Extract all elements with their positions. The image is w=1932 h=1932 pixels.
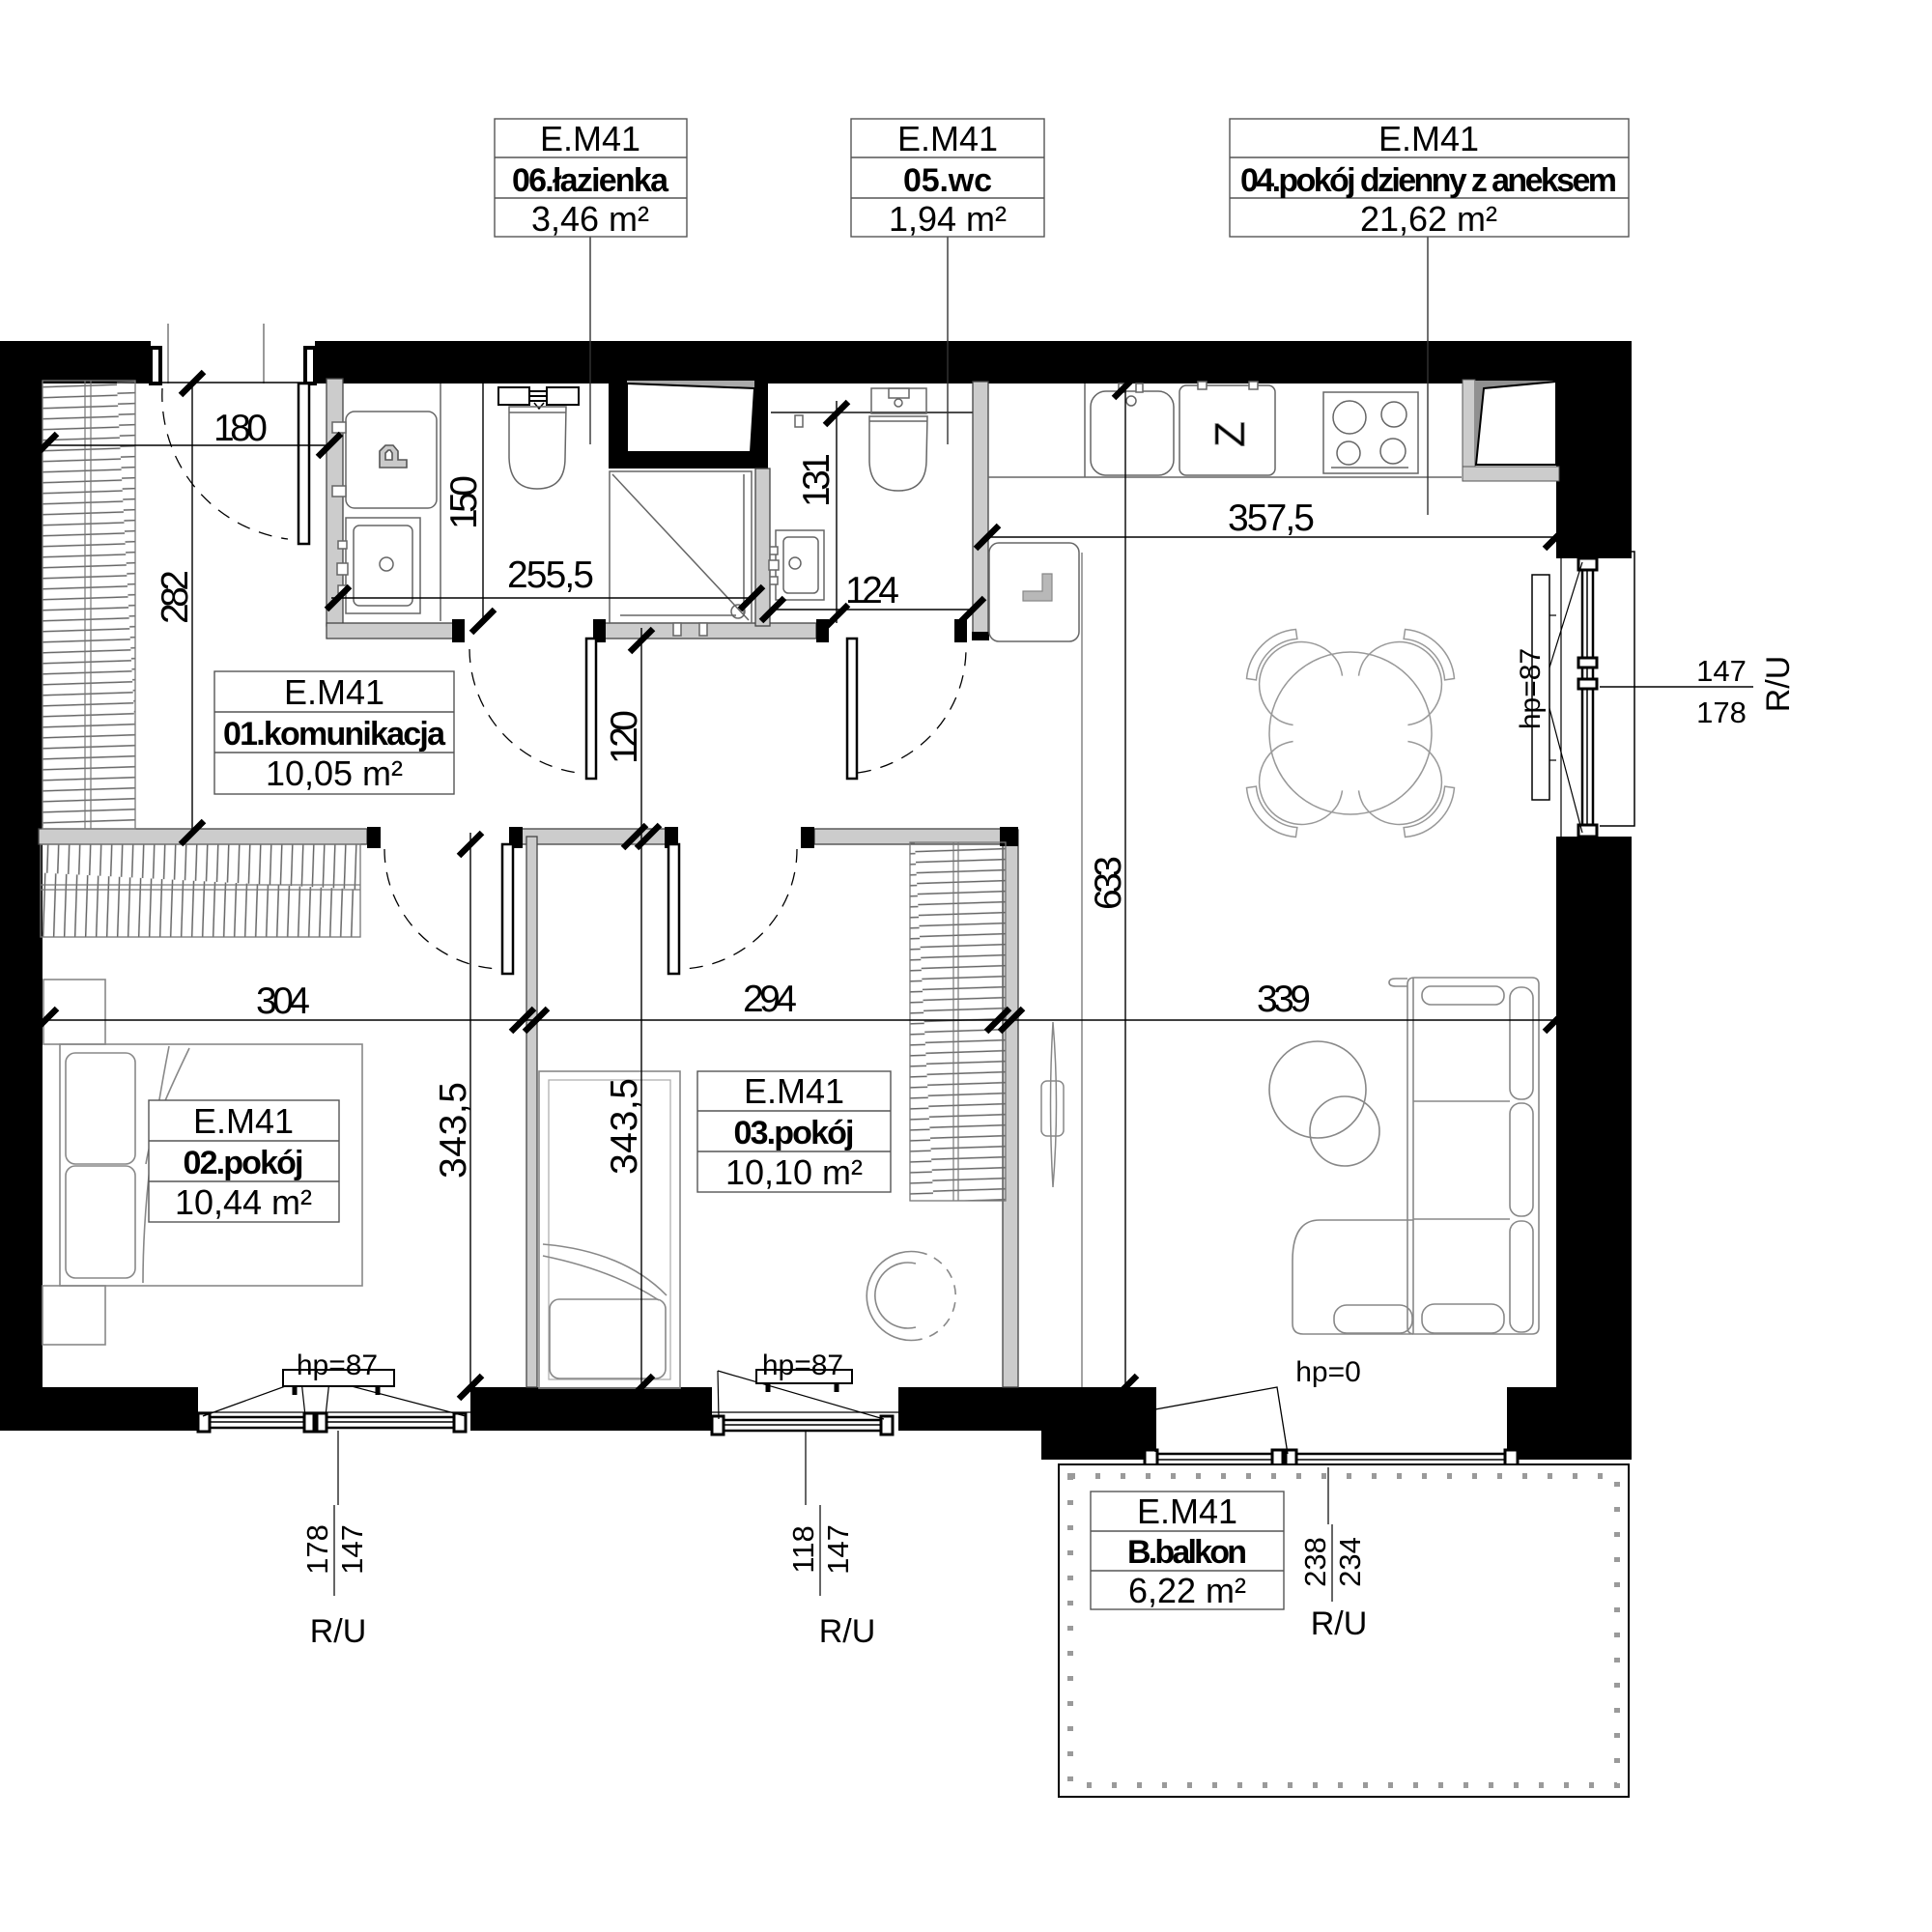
- svg-text:B.balkon: B.balkon: [1127, 1534, 1247, 1571]
- svg-text:10,44 m²: 10,44 m²: [175, 1182, 312, 1222]
- svg-text:02.pokój: 02.pokój: [184, 1145, 304, 1181]
- svg-text:131: 131: [796, 453, 838, 507]
- svg-text:1,94 m²: 1,94 m²: [889, 199, 1007, 239]
- svg-text:343,5: 343,5: [433, 1082, 474, 1179]
- svg-text:3,46 m²: 3,46 m²: [531, 199, 649, 239]
- svg-text:282: 282: [155, 570, 196, 624]
- svg-text:03.pokój: 03.pokój: [734, 1115, 855, 1151]
- svg-text:238: 238: [1298, 1537, 1332, 1587]
- svg-text:R/U: R/U: [1760, 656, 1797, 713]
- svg-text:343,5: 343,5: [604, 1078, 645, 1175]
- svg-text:178: 178: [300, 1524, 334, 1575]
- svg-text:10,05 m²: 10,05 m²: [266, 753, 403, 793]
- svg-text:633: 633: [1088, 856, 1129, 910]
- svg-text:147: 147: [1696, 654, 1747, 688]
- svg-text:150: 150: [443, 475, 485, 529]
- svg-text:E.M41: E.M41: [540, 119, 640, 158]
- svg-text:21,62 m²: 21,62 m²: [1360, 199, 1497, 239]
- svg-text:hp=87: hp=87: [1515, 648, 1547, 729]
- svg-text:Z: Z: [1207, 421, 1254, 447]
- svg-text:120: 120: [604, 710, 645, 764]
- svg-text:hp=87: hp=87: [762, 1350, 843, 1381]
- svg-text:6,22 m²: 6,22 m²: [1128, 1571, 1246, 1610]
- svg-text:E.M41: E.M41: [744, 1071, 844, 1111]
- svg-text:05.wc: 05.wc: [903, 162, 992, 199]
- svg-text:147: 147: [335, 1524, 369, 1575]
- svg-text:R/U: R/U: [310, 1613, 367, 1650]
- svg-text:R/U: R/U: [1311, 1605, 1368, 1642]
- svg-text:255,5: 255,5: [507, 554, 594, 596]
- svg-text:E.M41: E.M41: [1137, 1492, 1237, 1531]
- svg-text:147: 147: [821, 1524, 855, 1575]
- svg-text:01.komunikacja: 01.komunikacja: [223, 716, 446, 753]
- svg-text:304: 304: [256, 980, 310, 1022]
- svg-text:hp=0: hp=0: [1295, 1356, 1361, 1388]
- svg-text:357,5: 357,5: [1228, 497, 1315, 539]
- svg-text:R/U: R/U: [819, 1613, 876, 1650]
- svg-text:294: 294: [743, 979, 797, 1020]
- svg-text:178: 178: [1696, 696, 1747, 729]
- svg-text:339: 339: [1257, 979, 1311, 1020]
- svg-text:04.pokój dzienny z aneksem: 04.pokój dzienny z aneksem: [1240, 162, 1617, 199]
- svg-text:E.M41: E.M41: [1378, 119, 1479, 158]
- svg-text:E.M41: E.M41: [193, 1101, 294, 1141]
- svg-text:124: 124: [845, 570, 899, 611]
- svg-text:180: 180: [213, 408, 268, 449]
- svg-text:E.M41: E.M41: [897, 119, 998, 158]
- svg-text:hp=87: hp=87: [297, 1350, 378, 1381]
- svg-text:234: 234: [1333, 1537, 1367, 1587]
- svg-text:10,10 m²: 10,10 m²: [725, 1152, 863, 1192]
- svg-text:118: 118: [786, 1525, 820, 1573]
- svg-text:E.M41: E.M41: [284, 672, 384, 712]
- svg-text:06.łazienka: 06.łazienka: [512, 162, 669, 199]
